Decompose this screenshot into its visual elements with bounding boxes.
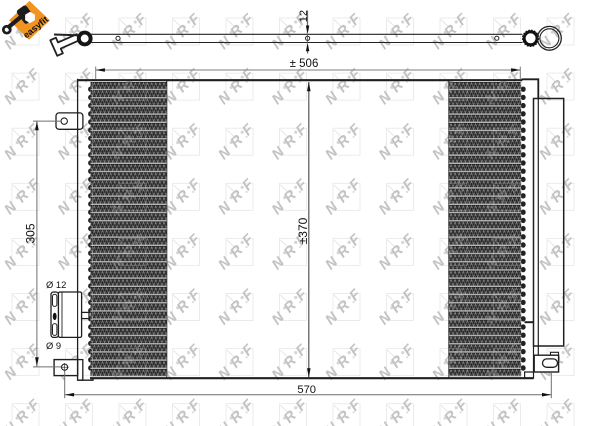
svg-text:570: 570	[297, 384, 316, 396]
svg-text:±370: ±370	[296, 217, 310, 244]
svg-text:305: 305	[24, 223, 38, 243]
svg-text:12: 12	[298, 10, 310, 22]
svg-text:± 506: ± 506	[290, 58, 319, 70]
svg-text:Ø 12: Ø 12	[46, 279, 66, 290]
svg-text:Ø 9: Ø 9	[46, 340, 61, 351]
